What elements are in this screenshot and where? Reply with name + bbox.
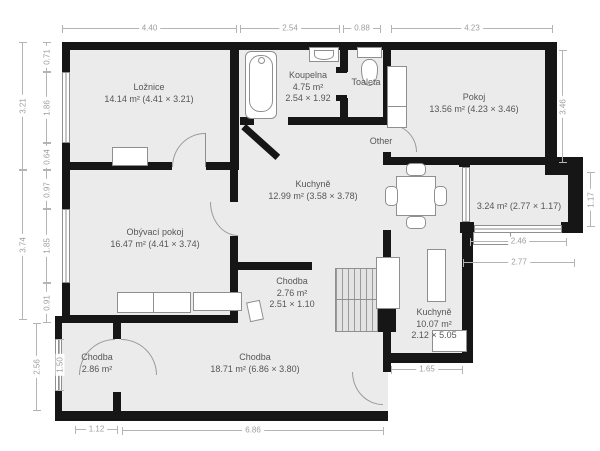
- room-dims: 2.51 × 1.10: [269, 299, 314, 311]
- dim-value: 1.65: [416, 365, 438, 374]
- window-living: [62, 209, 70, 283]
- room-dims: 2.54 × 1.92: [285, 93, 330, 105]
- wall-segment: [113, 392, 121, 413]
- dim-top-3: 0.88: [343, 28, 381, 29]
- wall-segment: [62, 315, 238, 323]
- wall-segment: [230, 262, 312, 270]
- dim-value: 4.40: [139, 24, 161, 33]
- dim-left-6: 0.97: [46, 170, 47, 209]
- room-label-chodba-big: Chodba 18.71 m² (6.86 × 3.80): [210, 352, 299, 375]
- dim-right-2: 1.17: [590, 172, 591, 227]
- room-name: Kuchyně: [268, 179, 357, 191]
- door-hinge-mark: [336, 67, 347, 73]
- room-area: 18.71 m² (6.86 × 3.80): [210, 364, 299, 376]
- dim-value: 1.12: [86, 425, 108, 434]
- wall-segment: [62, 42, 70, 72]
- dim-value: 0.71: [43, 46, 52, 68]
- room-name: Toaleta: [351, 77, 380, 89]
- room-name: Ložnice: [104, 82, 193, 94]
- floor-plan: Ložnice 14.14 m² (4.41 × 3.21) Koupelna …: [0, 0, 600, 451]
- kitchen-island-icon: [427, 249, 446, 302]
- room-label-kuchyne: Kuchyně 12.99 m² (3.58 × 3.78): [268, 179, 357, 202]
- dim-left-10: 1.50: [59, 339, 60, 391]
- dim-value: 2.56: [33, 356, 42, 378]
- chair-icon: [434, 186, 447, 206]
- room-label-chodba-entry: Chodba 2.86 m²: [81, 352, 113, 375]
- dim-value: 3.21: [19, 95, 28, 117]
- room-name: Chodba: [269, 276, 314, 288]
- door-hinge-mark: [459, 160, 470, 167]
- dim-top-1: 4.40: [62, 28, 237, 29]
- dim-left-2: 0.71: [46, 42, 47, 72]
- dim-value: 1.50: [56, 354, 65, 376]
- dim-value: 1.86: [43, 97, 52, 119]
- dim-left-4: 0.64: [46, 143, 47, 170]
- window-sill-icon: [473, 232, 511, 245]
- wall-segment: [383, 230, 391, 260]
- wardrobe-icon: [387, 66, 407, 128]
- dim-value: 0.91: [43, 292, 52, 314]
- room-area: 16.47 m² (4.41 × 3.74): [110, 239, 199, 251]
- room-area: 2.76 m²: [269, 288, 314, 300]
- room-area: 13.56 m² (4.23 × 3.46): [429, 104, 518, 116]
- wall-segment: [230, 170, 238, 202]
- door-hinge-mark: [336, 95, 347, 101]
- dim-value: 3.46: [559, 96, 568, 118]
- room-area: 4.75 m²: [285, 82, 330, 94]
- dim-balcony-1: 2.46: [470, 241, 567, 242]
- window-bedroom: [62, 72, 70, 143]
- dim-left-8: 0.91: [46, 283, 47, 323]
- dim-value: 3.74: [19, 234, 28, 256]
- closet-hatch-icon: [335, 268, 378, 332]
- wall-segment: [55, 390, 62, 413]
- toilet-cistern-icon: [357, 47, 382, 58]
- room-name: Pokoj: [429, 92, 518, 104]
- wall-segment: [545, 42, 557, 165]
- room-name: Other: [370, 136, 393, 148]
- closet-rail-line: [336, 299, 377, 300]
- room-name: Chodba: [81, 352, 113, 364]
- chair-icon: [406, 216, 426, 229]
- room-area: 12.99 m² (3.58 × 3.78): [268, 191, 357, 203]
- wall-segment: [113, 323, 121, 339]
- dim-value: 1.17: [587, 189, 596, 211]
- room-area: 2.86 m²: [81, 364, 113, 376]
- room-label-loznice: Ložnice 14.14 m² (4.41 × 3.21): [104, 82, 193, 105]
- wall-segment: [206, 162, 239, 170]
- wall-segment: [545, 157, 583, 175]
- wall-segment: [561, 222, 583, 233]
- room-area: 3.24 m² (2.77 × 1.17): [477, 201, 561, 213]
- room-name: Koupelna: [285, 70, 330, 82]
- wall-segment: [376, 309, 396, 332]
- dim-value: 2.54: [279, 24, 301, 33]
- sofa-icon: [117, 292, 154, 313]
- room-label-balcony: 3.24 m² (2.77 × 1.17): [477, 201, 561, 213]
- room-label-obyvaci: Obývací pokoj 16.47 m² (4.41 × 3.74): [110, 227, 199, 250]
- wall-segment: [391, 353, 473, 363]
- room-area: 10.07 m²: [411, 319, 456, 331]
- chair-icon: [406, 163, 426, 176]
- sink-basin: [314, 50, 334, 60]
- room-name: Obývací pokoj: [110, 227, 199, 239]
- dim-top-4: 4.23: [391, 28, 553, 29]
- dresser-icon: [112, 147, 148, 166]
- room-label-chodba-small: Chodba 2.76 m² 2.51 × 1.10: [269, 276, 314, 311]
- dim-bottom-2: 6.86: [122, 430, 384, 431]
- wall-segment: [288, 117, 340, 125]
- bathtub-tap-icon: [258, 57, 265, 64]
- dim-value: 2.46: [508, 237, 530, 246]
- room-name: Kuchyně: [411, 307, 456, 319]
- dim-value: 0.64: [43, 146, 52, 168]
- room-name: Chodba: [210, 352, 299, 364]
- sofa-icon: [193, 292, 242, 311]
- dim-value: 6.86: [242, 426, 264, 435]
- room-label-kuchyne2: Kuchyně 10.07 m² 2.12 × 5.05: [411, 307, 456, 342]
- balcony-door-window: [462, 167, 470, 222]
- dim-value: 4.23: [461, 24, 483, 33]
- dim-value: 0.97: [43, 179, 52, 201]
- dim-left-9: 2.56: [36, 323, 37, 411]
- dim-balcony-2: 2.77: [463, 262, 575, 263]
- wall-segment: [340, 117, 391, 125]
- wall-segment: [383, 332, 391, 372]
- dim-top-2: 2.54: [240, 28, 340, 29]
- room-label-pokoj: Pokoj 13.56 m² (4.23 × 3.46): [429, 92, 518, 115]
- dim-bottom-1: 1.12: [75, 429, 118, 430]
- dim-kitchen2-bottom: 1.65: [391, 369, 463, 370]
- dining-table-icon: [396, 176, 436, 216]
- room-dims: 2.12 × 5.05: [411, 330, 456, 342]
- wall-segment: [55, 411, 388, 421]
- dim-left-3: 1.86: [46, 72, 47, 143]
- room-label-toaleta: Toaleta: [351, 77, 380, 89]
- room-area: 14.14 m² (4.41 × 3.21): [104, 94, 193, 106]
- wardrobe-shelf-line: [388, 106, 406, 107]
- door-leaf-bedroom: [205, 133, 206, 167]
- dim-value: 2.77: [508, 258, 530, 267]
- dim-left-1: 3.21: [22, 42, 23, 170]
- fridge-icon: [376, 257, 400, 309]
- wall-segment: [230, 42, 239, 170]
- dim-left-5: 3.74: [22, 170, 23, 320]
- sofa-icon: [153, 292, 191, 313]
- wall-segment: [383, 152, 391, 165]
- chair-icon: [385, 186, 398, 206]
- dim-right-1: 3.46: [562, 50, 563, 163]
- dim-value: 0.88: [351, 24, 373, 33]
- dim-value: 1.85: [43, 235, 52, 257]
- room-label-koupelna: Koupelna 4.75 m² 2.54 × 1.92: [285, 70, 330, 105]
- wall-segment: [62, 170, 70, 209]
- room-label-other: Other: [370, 136, 393, 148]
- dim-left-7: 1.85: [46, 209, 47, 283]
